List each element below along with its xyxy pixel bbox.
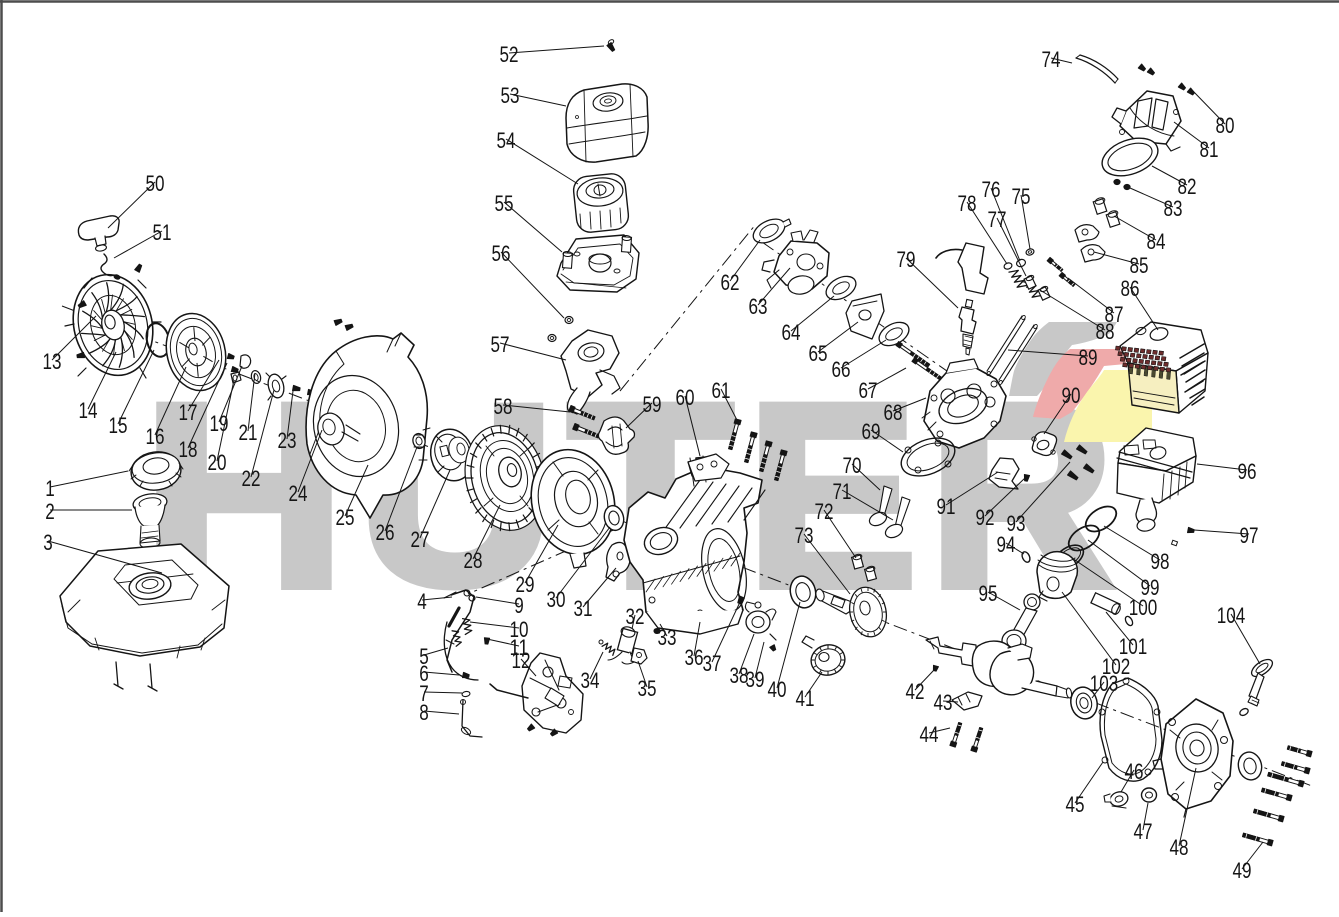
svg-text:57: 57 — [491, 332, 510, 357]
svg-text:104: 104 — [1217, 603, 1246, 628]
svg-text:52: 52 — [500, 42, 519, 67]
svg-text:31: 31 — [574, 596, 593, 621]
svg-text:88: 88 — [1096, 319, 1115, 344]
svg-text:103: 103 — [1090, 671, 1119, 696]
svg-text:3: 3 — [43, 530, 53, 555]
svg-text:72: 72 — [815, 499, 834, 524]
svg-text:85: 85 — [1130, 253, 1149, 278]
svg-text:13: 13 — [43, 349, 62, 374]
svg-text:68: 68 — [884, 400, 903, 425]
svg-text:83: 83 — [1164, 196, 1183, 221]
svg-text:4: 4 — [417, 589, 427, 614]
svg-text:77: 77 — [988, 207, 1007, 232]
svg-text:42: 42 — [906, 679, 925, 704]
svg-text:37: 37 — [703, 651, 722, 676]
svg-text:65: 65 — [809, 341, 828, 366]
svg-text:74: 74 — [1042, 47, 1061, 72]
svg-text:22: 22 — [242, 466, 261, 491]
svg-text:46: 46 — [1125, 759, 1144, 784]
svg-text:79: 79 — [897, 247, 916, 272]
svg-text:60: 60 — [676, 385, 695, 410]
svg-text:16: 16 — [146, 424, 165, 449]
svg-text:43: 43 — [934, 690, 953, 715]
svg-text:95: 95 — [979, 581, 998, 606]
svg-text:80: 80 — [1216, 113, 1235, 138]
svg-text:39: 39 — [746, 667, 765, 692]
svg-text:54: 54 — [497, 128, 516, 153]
svg-text:81: 81 — [1200, 137, 1219, 162]
svg-text:29: 29 — [516, 572, 535, 597]
svg-text:17: 17 — [179, 400, 198, 425]
svg-text:23: 23 — [278, 428, 297, 453]
svg-text:61: 61 — [712, 378, 731, 403]
svg-text:49: 49 — [1233, 858, 1252, 883]
svg-text:63: 63 — [749, 294, 768, 319]
svg-text:35: 35 — [638, 676, 657, 701]
svg-text:2: 2 — [45, 499, 55, 524]
svg-text:24: 24 — [289, 481, 308, 506]
svg-text:76: 76 — [982, 177, 1001, 202]
svg-text:78: 78 — [958, 191, 977, 216]
svg-text:26: 26 — [376, 520, 395, 545]
svg-text:15: 15 — [109, 413, 128, 438]
svg-text:36: 36 — [685, 645, 704, 670]
svg-text:97: 97 — [1240, 523, 1259, 548]
svg-text:21: 21 — [239, 420, 258, 445]
svg-text:84: 84 — [1147, 229, 1166, 254]
svg-text:19: 19 — [210, 411, 229, 436]
svg-text:92: 92 — [976, 505, 995, 530]
svg-text:55: 55 — [495, 191, 514, 216]
svg-text:27: 27 — [411, 527, 430, 552]
svg-text:40: 40 — [768, 677, 787, 702]
svg-text:14: 14 — [79, 398, 98, 423]
svg-text:44: 44 — [920, 722, 939, 747]
svg-text:67: 67 — [859, 378, 878, 403]
svg-text:1: 1 — [45, 476, 55, 501]
svg-text:50: 50 — [146, 171, 165, 196]
svg-text:47: 47 — [1134, 819, 1153, 844]
svg-text:20: 20 — [208, 450, 227, 475]
svg-text:90: 90 — [1062, 383, 1081, 408]
svg-text:73: 73 — [795, 523, 814, 548]
svg-text:94: 94 — [997, 532, 1016, 557]
svg-text:28: 28 — [464, 548, 483, 573]
svg-text:75: 75 — [1012, 184, 1031, 209]
svg-text:100: 100 — [1129, 595, 1158, 620]
svg-text:98: 98 — [1151, 549, 1170, 574]
svg-text:33: 33 — [658, 625, 677, 650]
svg-text:12: 12 — [512, 648, 531, 673]
svg-text:64: 64 — [782, 320, 801, 345]
svg-text:62: 62 — [721, 270, 740, 295]
svg-text:91: 91 — [937, 494, 956, 519]
svg-text:69: 69 — [862, 419, 881, 444]
svg-text:70: 70 — [843, 453, 862, 478]
svg-text:59: 59 — [643, 392, 662, 417]
svg-text:56: 56 — [492, 241, 511, 266]
svg-text:30: 30 — [547, 587, 566, 612]
svg-text:53: 53 — [501, 83, 520, 108]
svg-text:71: 71 — [833, 479, 852, 504]
svg-text:96: 96 — [1238, 459, 1257, 484]
svg-text:51: 51 — [153, 220, 172, 245]
svg-text:18: 18 — [179, 437, 198, 462]
svg-text:45: 45 — [1066, 792, 1085, 817]
svg-text:34: 34 — [581, 668, 600, 693]
svg-text:25: 25 — [336, 505, 355, 530]
svg-text:58: 58 — [494, 394, 513, 419]
svg-text:66: 66 — [832, 357, 851, 382]
svg-text:41: 41 — [796, 686, 815, 711]
svg-text:86: 86 — [1121, 276, 1140, 301]
svg-text:89: 89 — [1079, 345, 1098, 370]
svg-text:48: 48 — [1170, 835, 1189, 860]
svg-text:32: 32 — [626, 604, 645, 629]
svg-text:8: 8 — [419, 700, 429, 725]
